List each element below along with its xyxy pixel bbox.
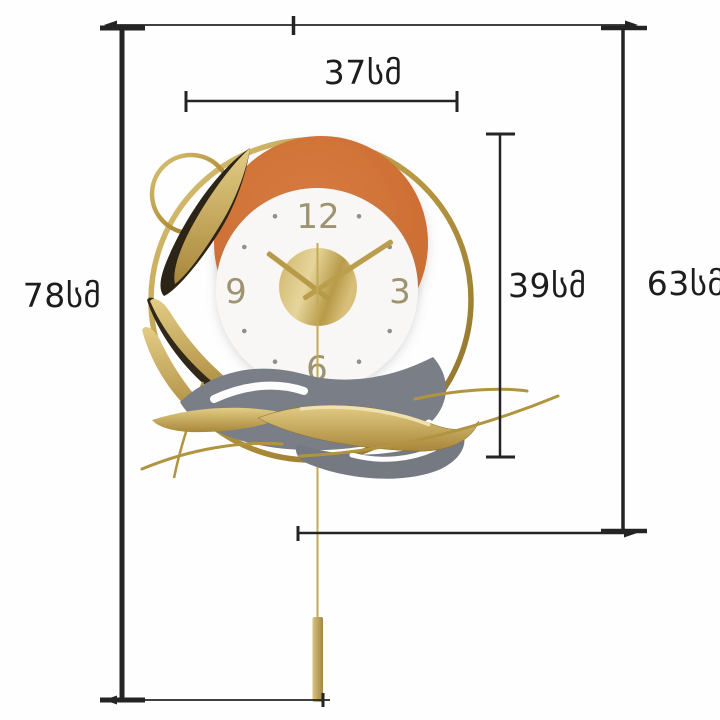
dimension-width	[186, 91, 457, 112]
dimension-total-height	[100, 28, 145, 700]
numeral-9: 9	[225, 272, 247, 312]
pendulum-bob	[313, 617, 324, 702]
label-width-top: 37სმ	[324, 53, 402, 92]
dimension-top-reference	[104, 16, 638, 35]
label-body-height: 63სმ	[647, 264, 720, 303]
dimension-bottom-reference	[104, 693, 330, 707]
label-inner-height: 39სმ	[508, 266, 586, 305]
numeral-12: 12	[296, 197, 339, 237]
numeral-3: 3	[389, 272, 411, 312]
product-dimension-diagram: 12 3 6 9	[0, 0, 720, 720]
diagram-svg: 12 3 6 9	[0, 0, 720, 720]
label-total-height: 78სმ	[23, 276, 101, 315]
wall-clock: 12 3 6 9	[142, 30, 558, 702]
